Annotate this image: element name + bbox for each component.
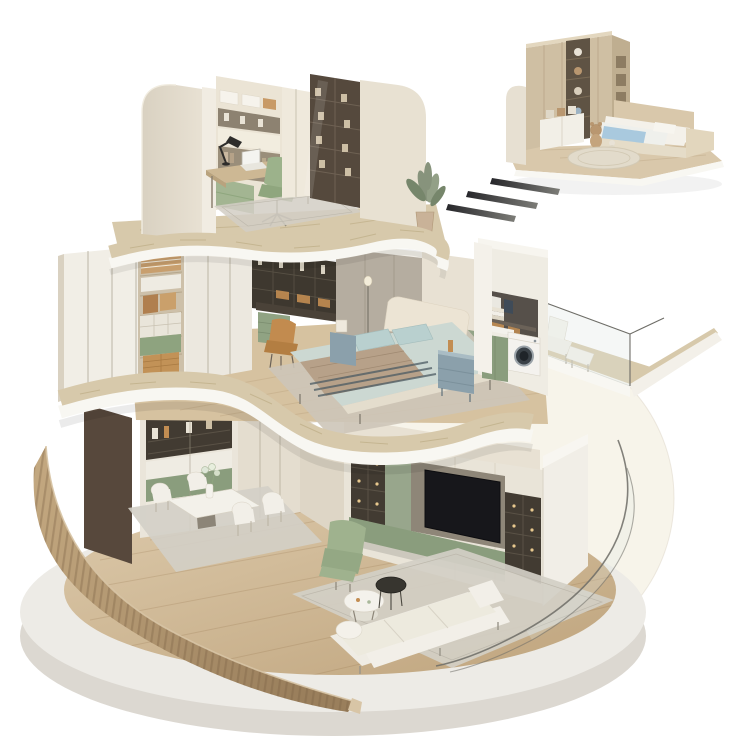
- cutaway-house-illustration: [0, 0, 750, 750]
- dining-divider-panel: [84, 404, 132, 564]
- balcony-tip-top: [630, 328, 718, 384]
- closet-handbag: [143, 294, 158, 314]
- balcony-tip-fascia: [630, 332, 722, 397]
- washing-machine: [508, 332, 540, 376]
- study-left-curved-wall: [142, 85, 202, 240]
- study-room: [142, 74, 448, 240]
- study-right-curved-wall: [360, 80, 426, 228]
- kids-side-niches: [616, 56, 626, 104]
- sofa-arm-roll: [336, 621, 362, 639]
- kids-curved-wall: [506, 86, 526, 165]
- laundry-nook: [474, 238, 548, 396]
- dash: [466, 191, 538, 209]
- study-level: [110, 74, 448, 278]
- closet-handbag: [160, 292, 176, 311]
- dash: [446, 204, 516, 222]
- bedroom-pillar: [474, 242, 492, 374]
- glass-door-bookcase: [304, 74, 360, 208]
- render-stage: [0, 0, 750, 750]
- study-inner-panel: [202, 87, 216, 240]
- hanging-towel-navy: [504, 299, 513, 314]
- kids-bedroom-vignette: [506, 31, 724, 195]
- wardrobe-side: [58, 254, 64, 402]
